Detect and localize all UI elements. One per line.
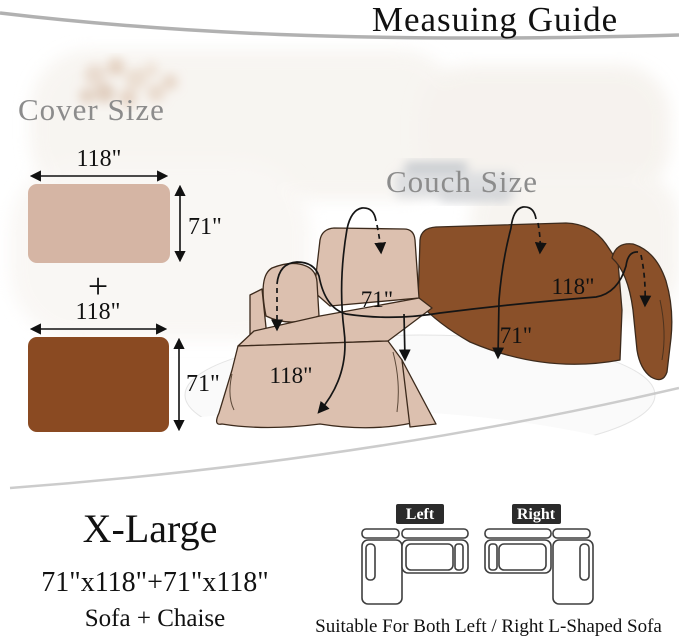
page-title: Measuing Guide: [325, 0, 665, 40]
cover-size-heading: Cover Size: [18, 92, 165, 128]
sofa-cover-illustration: 71" 118" 118" 71": [217, 207, 672, 428]
measuring-guide-image: 118" 71" + 118" 71": [0, 0, 679, 641]
bottom-rect-width-label: 118": [76, 299, 121, 325]
bottom-rect-height-label: 71": [186, 371, 220, 397]
size-dimensions: 71"x118"+71"x118": [10, 567, 300, 599]
size-composition: Sofa + Chaise: [10, 605, 300, 633]
sofa-width-label: 118": [551, 274, 594, 299]
chaise-skirt: [217, 341, 412, 428]
top-rect-height-label: 71": [188, 214, 222, 240]
orientation-caption: Suitable For Both Left / Right L-Shaped …: [298, 616, 679, 638]
couch-size-heading: Couch Size: [386, 164, 538, 200]
cover-size-bottom-rect-group: 118" 71": [28, 299, 220, 432]
chaise-width-label: 118": [269, 363, 312, 388]
sofa-depth-label: 71": [500, 323, 532, 348]
chaise-depth-label: 71": [361, 287, 393, 312]
orientation-diagrams: Left Right: [362, 504, 593, 604]
cover-size-top-rect-group: 118" 71": [28, 146, 222, 263]
top-rect-width-label: 118": [77, 146, 122, 172]
top-cover-rect: [28, 184, 170, 263]
chaise-right-arrow: [404, 314, 405, 359]
size-name: X-Large: [40, 505, 260, 552]
right-badge-label: Right: [517, 506, 556, 523]
left-sofa-diagram: [362, 529, 468, 604]
left-badge-label: Left: [406, 506, 435, 523]
chaise-arm: [263, 263, 319, 322]
right-sofa-diagram: [485, 529, 593, 604]
bottom-cover-rect: [28, 337, 169, 432]
